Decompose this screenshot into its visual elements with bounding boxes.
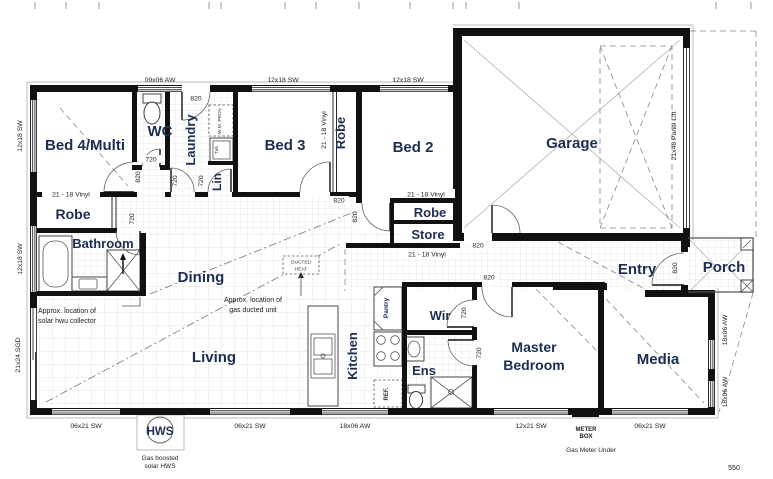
- solar-note-line1: Approx. location of: [38, 308, 96, 315]
- floor-label-vinyl-1: 21 - 18 Vinyl: [52, 192, 90, 199]
- window-06x21-sw-living1: [52, 409, 120, 414]
- room-label-kitchen: Kitchen: [345, 332, 360, 380]
- tub-label: Tub: [214, 146, 220, 154]
- window-label-12x21: 12x21 SW: [515, 423, 547, 430]
- room-label-pantry: Pantry: [383, 298, 390, 319]
- room-label-porch: Porch: [703, 259, 746, 276]
- bed3-door: [300, 162, 330, 192]
- window-09x06-aw: [138, 86, 182, 91]
- door-size-master: 820: [483, 275, 495, 282]
- window-label-12x18-bath: 12x18 SW: [17, 243, 24, 275]
- door-size-bathroom: 720: [129, 213, 136, 225]
- room-label-ens: Ens: [412, 363, 436, 378]
- window-12x18-sw-bathroom: [31, 226, 36, 292]
- window-label-06x21-1: 06x21 SW: [70, 423, 102, 430]
- door-size-bed4: 820: [135, 171, 142, 183]
- room-label-living: Living: [192, 349, 236, 366]
- window-label-09x06: 09x06 AW: [145, 77, 176, 84]
- bed2-door: [362, 203, 390, 231]
- garage-door-label: 21x48 Panel Lift: [671, 112, 678, 161]
- door-size-entry: 820: [672, 262, 679, 274]
- window-label-12x18-bed3: 12x18 SW: [267, 77, 299, 84]
- gas-ducted-note-line1: Approx. location of: [224, 297, 282, 304]
- wc-toilet: [143, 94, 161, 124]
- room-label-master-2: Bedroom: [503, 357, 564, 373]
- meter-box-line1: METER: [576, 427, 598, 433]
- room-label-lin: Lin: [210, 173, 224, 191]
- room-label-bathroom: Bathroom: [72, 236, 133, 251]
- window-label-18x06-media1: 18x06 AW: [722, 314, 729, 345]
- door-size-lin: 720: [198, 175, 205, 187]
- ensuite-shower: [431, 377, 472, 408]
- dim-550: 550: [728, 465, 740, 472]
- room-label-wir: Wir: [430, 308, 451, 323]
- room-label-bed3: Bed 3: [265, 137, 306, 154]
- window-label-18x06-kitchen: 18x06 AW: [340, 423, 371, 430]
- floor-plan-drawing: Bed 4/Multi WC Laundry Lin Bed 3 Robe Be…: [0, 0, 773, 479]
- door-size-bed3: 820: [333, 198, 345, 205]
- hws-label: HWS: [147, 426, 174, 438]
- ensuite-vanity: [405, 337, 424, 361]
- gas-ducted-note-line2: gas ducted unit: [229, 307, 277, 314]
- room-label-store: Store: [411, 227, 444, 242]
- door-label-21x24-sgd: 21x24 SGD: [15, 337, 22, 372]
- master-door: [482, 287, 512, 317]
- room-label-master-1: Master: [511, 339, 557, 355]
- floor-label-vinyl-3: 21 - 18 Vinyl: [407, 192, 445, 199]
- garage-panel-lift-door: [684, 48, 689, 228]
- door-size-ens: 720: [476, 347, 483, 359]
- window-12x18-sw-bed4: [31, 100, 36, 172]
- door-size-laundry-ext: 820: [190, 96, 202, 103]
- window-06x21-sw-living2: [210, 409, 290, 414]
- bathtub: [39, 236, 72, 292]
- room-label-robe-bed2: Robe: [414, 205, 447, 220]
- bed4-door: [104, 162, 134, 192]
- room-label-entry: Entry: [618, 261, 657, 278]
- window-label-18x06-media2: 18x06 AW: [722, 376, 729, 407]
- room-label-robe-bed4: Robe: [56, 206, 91, 222]
- ducted-heat-line1: DUCTED: [291, 260, 312, 266]
- window-18x06-aw-kitchen: [322, 409, 388, 414]
- ref-label: REF.: [384, 387, 390, 400]
- bathroom-shower: [107, 250, 140, 291]
- bathroom-vanity: [72, 277, 107, 291]
- hws-caption-line1: Gas boosted: [142, 455, 179, 462]
- room-label-garage: Garage: [546, 135, 598, 152]
- window-label-06x21-2: 06x21 SW: [234, 423, 266, 430]
- floor-label-vinyl-2: 21 - 18 Vinyl: [321, 111, 328, 149]
- laundry-tub: [210, 138, 233, 162]
- room-label-laundry: Laundry: [183, 114, 198, 166]
- room-label-dining: Dining: [178, 269, 225, 286]
- door-size-bed2: 820: [352, 211, 359, 223]
- room-label-wc: WC: [148, 123, 173, 140]
- cooktop: [374, 332, 402, 366]
- window-18x06-aw-media2: [709, 381, 714, 407]
- hws-caption-line2: solar HWS: [144, 463, 176, 470]
- floor-plan-page: Bed 4/Multi WC Laundry Lin Bed 3 Robe Be…: [0, 0, 773, 479]
- sliding-door-21x24-sgd: [31, 308, 36, 400]
- room-label-bed2: Bed 2: [393, 139, 434, 156]
- window-label-06x21-3: 06x21 SW: [634, 423, 666, 430]
- door-size-wir: 720: [461, 307, 468, 319]
- window-18x06-aw-media1: [709, 340, 714, 369]
- window-12x18-sw-bed3: [252, 86, 330, 91]
- room-label-robe-bed3: Robe: [333, 117, 348, 150]
- floor-label-vinyl-4: 21 - 18 Vinyl: [408, 252, 446, 259]
- door-size-wc: 720: [145, 157, 157, 164]
- room-label-bed4: Bed 4/Multi: [45, 137, 125, 154]
- wm-prov-label: W.M. PROV: [217, 107, 223, 134]
- window-12x18-sw-bed2: [380, 86, 448, 91]
- meter-box-line2: BOX: [579, 434, 592, 440]
- ducted-heat-line2: HEAT: [295, 267, 308, 273]
- room-label-media: Media: [637, 351, 680, 368]
- kitchen-island: [308, 306, 338, 406]
- window-06x21-sw-media: [612, 409, 688, 414]
- solar-note-line2: solar hwu collector: [38, 318, 97, 325]
- gas-meter-label: Gas Meter Under: [566, 447, 617, 454]
- window-label-12x18-bed4: 12x18 SW: [17, 120, 24, 152]
- door-size-laundry: 720: [172, 175, 179, 187]
- window-label-12x18-bed2: 12x18 SW: [392, 77, 424, 84]
- door-size-garage: 820: [472, 243, 484, 250]
- window-12x21-sw-master: [494, 409, 568, 414]
- ruler-ticks: [35, 2, 751, 9]
